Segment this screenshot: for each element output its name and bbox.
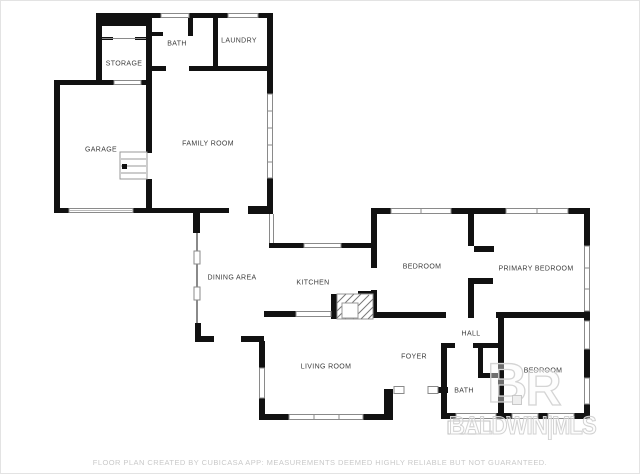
garage-step — [120, 152, 147, 179]
room-label-primary-bedroom: PRIMARY BEDROOM — [498, 266, 573, 273]
windows — [114, 14, 590, 420]
room-label-bath-upper: BATH — [167, 41, 187, 48]
room-label-dining-area: DINING AREA — [208, 275, 257, 282]
front-door — [394, 387, 438, 394]
disclaimer-text: FLOOR PLAN CREATED BY CUBICASA APP: MEAS… — [1, 458, 639, 467]
room-label-hall: HALL — [462, 331, 481, 338]
porch-step — [448, 421, 490, 434]
room-label-bedroom-top: BEDROOM — [403, 264, 442, 271]
garage-door — [69, 209, 133, 213]
walls — [54, 13, 590, 420]
staircase — [337, 294, 373, 319]
room-label-bath-lower: BATH — [454, 388, 474, 395]
room-label-laundry: LAUNDRY — [221, 38, 257, 45]
room-label-family-room: FAMILY ROOM — [182, 141, 234, 148]
room-label-bedroom-right: BEDROOM — [524, 368, 563, 375]
room-label-kitchen: KITCHEN — [296, 280, 329, 287]
room-label-storage: STORAGE — [106, 61, 143, 68]
floorplan-image: STORAGE BATH LAUNDRY GARAGE FAMILY ROOM … — [0, 0, 640, 474]
floorplan-drawing — [1, 1, 639, 473]
room-label-foyer: FOYER — [401, 354, 427, 361]
room-label-living-room: LIVING ROOM — [301, 364, 352, 371]
room-label-garage: GARAGE — [85, 147, 117, 154]
